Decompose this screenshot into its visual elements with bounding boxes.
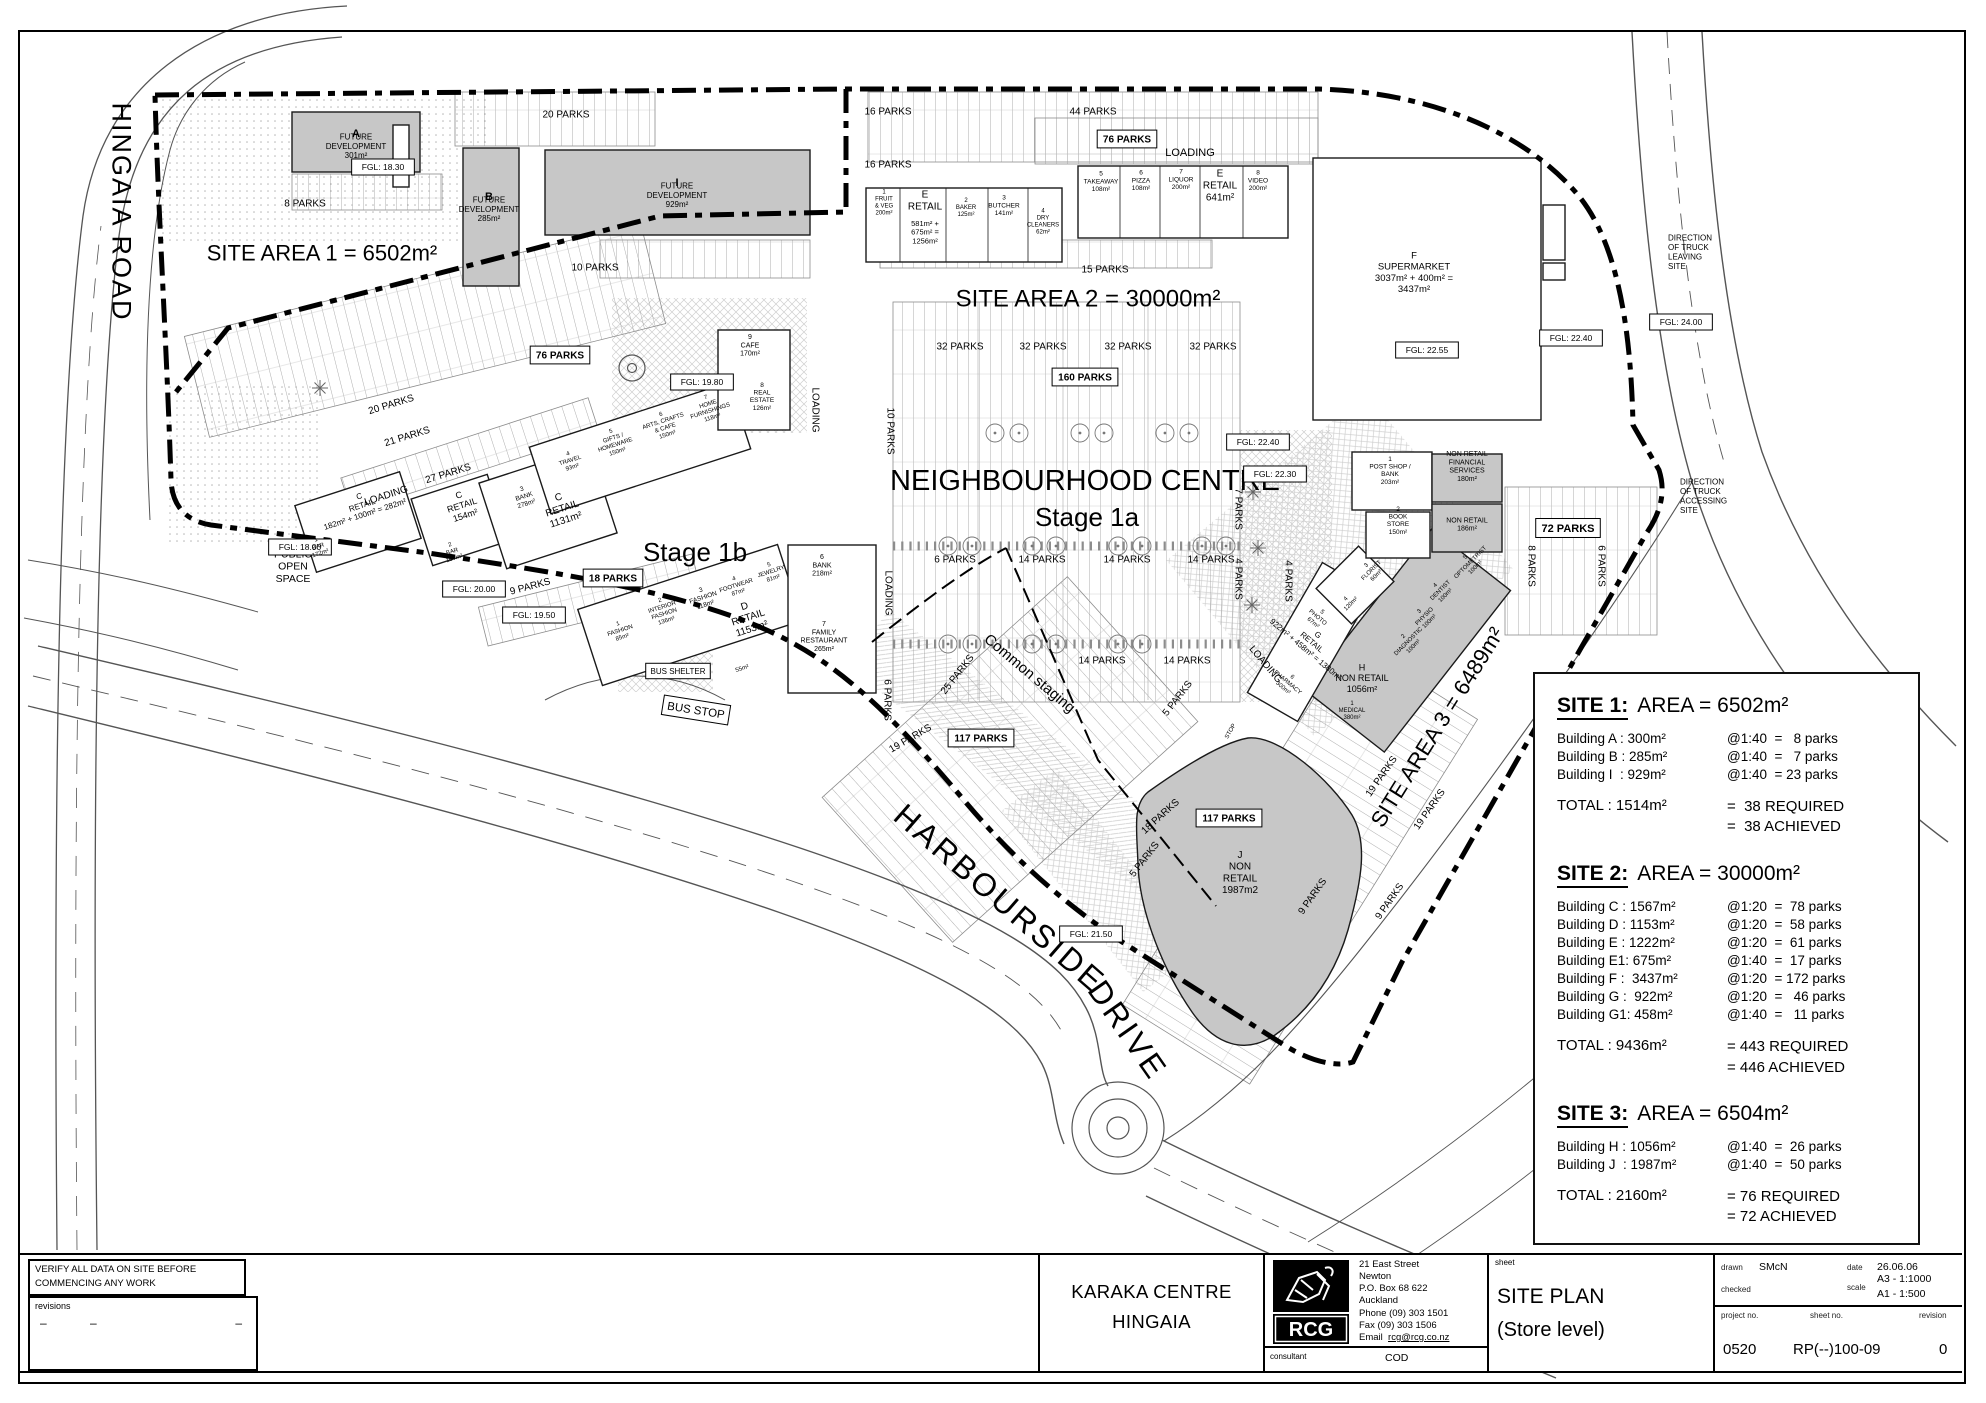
label-line: FGL: 19.50 (513, 610, 556, 620)
tree-trunk (1117, 545, 1120, 548)
label-line: RETAIL (1223, 873, 1258, 884)
building-area: Building A : 300m² (1557, 730, 1727, 748)
label-text: 8 PARKS (284, 199, 326, 210)
label-line: 32 PARKS (1019, 342, 1066, 353)
label-line: DEVELOPMENT (326, 142, 387, 151)
label-text: 16 PARKS (864, 107, 911, 118)
plan-label: 6 PARKS (1596, 545, 1607, 587)
email-line: Email rcg@rcg.co.nz (1359, 1332, 1449, 1344)
label-line: 32 PARKS (936, 342, 983, 353)
label-line: FGL: 22.40 (1237, 437, 1280, 447)
label-line: DRY (1037, 216, 1050, 222)
building-d-bank-restaurant-outline (788, 545, 876, 693)
label-text: 76 PARKS (536, 351, 584, 362)
checked-label: checked (1721, 1285, 1751, 1294)
plan-label: 4 PARKS (1233, 558, 1244, 600)
label-line: FGL: 21.50 (1070, 929, 1113, 939)
parking-calc: @1:40 = 17 parks (1727, 952, 1842, 970)
label-line: 6 PARKS (1596, 545, 1607, 587)
plan-label: 55m² (735, 664, 750, 674)
tree-trunk (947, 643, 950, 646)
label-line: FINANCIAL (1449, 459, 1486, 466)
label-line: 2 (1396, 506, 1400, 513)
stage-1b-label: Stage 1b (643, 537, 747, 567)
label-text: LOADING (883, 570, 894, 615)
building-area: Building G1: 458m² (1557, 1006, 1727, 1024)
consultant-value: COD (1385, 1352, 1408, 1364)
label-text: HINGAIA ROAD (107, 102, 137, 321)
label-line: Stage 1a (1035, 502, 1140, 532)
bus-stop-label: BUS STOP (661, 695, 730, 725)
label-line: 16 PARKS (864, 107, 911, 118)
address-line: Phone (09) 303 1501 (1359, 1308, 1449, 1320)
label-line: 200m² (1249, 185, 1268, 192)
drawn-label: drawn (1721, 1263, 1743, 1272)
truck-graphic-site1 (393, 125, 409, 187)
truck-graphic-dock-outline (1543, 205, 1565, 260)
site-title: SITE 3: (1557, 1102, 1628, 1128)
label-text: 44 PARKS (1069, 107, 1116, 118)
meta-bottom-row: project no. sheet no. revision 0520 RP(-… (1715, 1305, 1962, 1371)
label-text: 14 PARKS (1187, 555, 1234, 566)
label-line: 108m² (1132, 185, 1151, 192)
label-line: FUTURE (340, 132, 372, 141)
label-line: FGL: 19.80 (681, 377, 724, 387)
sheet-no-label: sheet no. (1810, 1311, 1843, 1320)
label-text: STOP (1224, 723, 1237, 740)
label-line: 4 PARKS (1233, 558, 1244, 600)
label-line: BOOK (1389, 513, 1408, 520)
tree-trunk (1141, 643, 1144, 646)
parking-calc: @1:20 = 172 parks (1727, 970, 1845, 988)
road-line (24, 618, 238, 670)
label-text: FGL: 22.55 (1406, 345, 1449, 355)
label-line: F (1411, 251, 1417, 262)
label-line: FGL: 20.00 (453, 584, 496, 594)
revision-label: revision (1919, 1311, 1947, 1320)
site-total-row: TOTAL : 1514m²= 38 REQUIRED= 38 ACHIEVED (1557, 797, 1896, 838)
stage-1a-label: Stage 1a (1035, 502, 1140, 532)
label-text: 72 PARKS (1542, 523, 1595, 535)
tree-trunk (971, 643, 974, 646)
label-line: NON (1229, 862, 1251, 873)
building-parking-row: Building G1: 458m²@1:40 = 11 parks (1557, 1006, 1896, 1024)
plan-label: 10 PARKS (885, 407, 896, 454)
label-text: Stage 1a (1035, 502, 1140, 532)
label-line: 180m² (1457, 476, 1478, 483)
label-line: ACCESSING (1680, 497, 1727, 506)
label-line: 9 PARKS (1373, 881, 1406, 922)
label-text: 6 PARKS (1596, 545, 1607, 587)
parking-calc: @1:40 = 8 parks (1727, 730, 1838, 748)
label-text: 6 PARKS (882, 679, 893, 721)
label-line: FGL: 18.30 (362, 162, 405, 172)
label-line: 8 PARKS (1526, 545, 1537, 587)
tree-trunk (1117, 643, 1120, 646)
label-line: 44 PARKS (1069, 107, 1116, 118)
label-line: STORE (1387, 521, 1410, 528)
label-line: CLEANERS (1027, 223, 1059, 229)
site-area: AREA = 6504m² (1637, 1102, 1788, 1125)
revision-value: 0 (1939, 1341, 1947, 1358)
plan-label: 16 PARKS (864, 160, 911, 171)
label-text: 4 PARKS (1283, 560, 1294, 602)
site-total-result-line: = 38 REQUIRED (1727, 797, 1844, 817)
plan-label: 20 PARKS (542, 110, 589, 121)
label-line: RESTAURANT (801, 638, 849, 645)
label-line: POST SHOP / (1369, 463, 1410, 470)
plan-label: 16 PARKS (864, 107, 911, 118)
consultant-address: 21 East StreetNewtonP.O. Box 68 622Auckl… (1359, 1259, 1449, 1344)
label-line: 21 PARKS (383, 425, 432, 449)
building-parking-row: Building F : 3437m²@1:20 = 172 parks (1557, 970, 1896, 988)
sheet-label: sheet (1495, 1258, 1515, 1267)
label-text: 160 PARKS (1058, 373, 1112, 384)
plan-label: 72 PARKS (1536, 519, 1601, 538)
label-line: 108m² (1092, 186, 1111, 193)
label-text: 21 PARKS (383, 425, 432, 449)
label-line: FGL: 24.00 (1660, 317, 1703, 327)
label-line: FUTURE (473, 195, 505, 204)
plan-label: 4 PARKS (1283, 560, 1294, 602)
label-line: E (922, 190, 929, 201)
site-total-area: TOTAL : 2160m² (1557, 1187, 1727, 1228)
building-parking-row: Building A : 300m²@1:40 = 8 parks (1557, 730, 1896, 748)
parking-schedule-panel: SITE 1:AREA = 6502m²Building A : 300m²@1… (1533, 672, 1920, 1245)
parking-schedule-section: SITE 1:AREA = 6502m²Building A : 300m²@1… (1557, 694, 1896, 838)
label-line: 6 (1139, 170, 1143, 177)
truck-leaving-note: DIRECTIONOF TRUCKLEAVINGSITE (1668, 234, 1712, 271)
site-total-row: TOTAL : 2160m²= 76 REQUIRED= 72 ACHIEVED (1557, 1187, 1896, 1228)
label-line: 62m² (1036, 230, 1050, 236)
label-line: 1987m2 (1222, 885, 1259, 896)
label-line: 3437m² (1398, 284, 1430, 295)
address-line: P.O. Box 68 622 (1359, 1283, 1449, 1295)
plan-label: STOP (1224, 723, 1237, 740)
site-total-results: = 76 REQUIRED= 72 ACHIEVED (1727, 1187, 1840, 1228)
label-text: 117 PARKS (954, 734, 1008, 745)
fgl-22-55: FGL: 22.55 (1396, 342, 1459, 358)
label-line: J (1238, 850, 1243, 861)
truck-accessing-note: DIRECTIONOF TRUCKACCESSINGSITE (1680, 478, 1727, 515)
label-text: DIRECTIONOF TRUCKLEAVINGSITE (1668, 234, 1712, 271)
tree-trunk (1225, 545, 1228, 548)
label-line: 6 PARKS (934, 555, 976, 566)
label-line: 117 PARKS (1202, 814, 1256, 825)
label-text: Stage 1b (643, 537, 747, 567)
fgl-21-50: FGL: 21.50 (1060, 926, 1123, 942)
building-area: Building J : 1987m² (1557, 1156, 1727, 1174)
label-text: 8 PARKS (1526, 545, 1537, 587)
parking-schedule-section: SITE 3:AREA = 6504m²Building H : 1056m²@… (1557, 1102, 1896, 1228)
project-no-label: project no. (1721, 1311, 1758, 1320)
building-parking-row: Building E : 1222m²@1:20 = 61 parks (1557, 934, 1896, 952)
roundabout (1107, 1117, 1129, 1139)
label-line: RETAIL (908, 201, 943, 212)
site-total-row: TOTAL : 9436m²= 443 REQUIRED= 446 ACHIEV… (1557, 1037, 1896, 1078)
label-line: Stage 1b (643, 537, 747, 567)
label-line: FGL: 22.30 (1254, 469, 1297, 479)
parking-calc: @1:20 = 58 parks (1727, 916, 1842, 934)
site-heading: SITE 2:AREA = 30000m² (1557, 862, 1896, 886)
label-line: FUTURE (661, 181, 693, 190)
plan-label: LOADING (810, 387, 821, 432)
plan-label: 32 PARKS (936, 342, 983, 353)
label-text: 14 PARKS (1163, 656, 1210, 667)
parking-schedule-section: SITE 2:AREA = 30000m²Building C : 1567m²… (1557, 862, 1896, 1078)
label-text: LOADING (810, 387, 821, 432)
label-line: RETAIL (1203, 181, 1238, 192)
plan-label: 32 PARKS (1189, 342, 1236, 353)
label-line: LOADING (810, 387, 821, 432)
label-line: 8 (760, 382, 764, 389)
label-line: 55m² (735, 664, 750, 674)
drawing-meta-cell: drawn SMcN date 26.06.06 checked scale A… (1713, 1255, 1962, 1371)
scale-value-a1: A1 - 1:500 (1877, 1288, 1925, 1300)
fgl-18-30: FGL: 18.30 (352, 159, 415, 175)
label-line: ESTATE (750, 397, 775, 404)
label-line: BUTCHER (988, 202, 1020, 209)
tree-trunk (1031, 545, 1034, 548)
site-area-2-label: SITE AREA 2 = 30000m² (956, 285, 1221, 312)
plan-label: 7 PARKS (1233, 488, 1244, 530)
rcg-logo-top (1273, 1260, 1349, 1312)
building-area: Building F : 3437m² (1557, 970, 1727, 988)
building-parking-row: Building J : 1987m²@1:40 = 50 parks (1557, 1156, 1896, 1174)
site-total-results: = 38 REQUIRED= 38 ACHIEVED (1727, 797, 1844, 838)
label-line: SITE (1668, 262, 1686, 271)
parking-calc: @1:20 = 46 parks (1727, 988, 1845, 1006)
building-parking-row: Building C : 1567m²@1:20 = 78 parks (1557, 898, 1896, 916)
label-text: FGL: 22.40 (1237, 437, 1280, 447)
address-line: Auckland (1359, 1295, 1449, 1307)
label-line: TAKEAWAY (1084, 178, 1119, 185)
parking-calc: @1:20 = 78 parks (1727, 898, 1842, 916)
plan-label: 14 PARKS (1103, 555, 1150, 566)
building-area: Building C : 1567m² (1557, 898, 1727, 916)
label-line: DIRECTION (1668, 234, 1712, 243)
tree-trunk (1055, 643, 1058, 646)
site-total-area: TOTAL : 9436m² (1557, 1037, 1727, 1078)
label-line: 200m² (875, 211, 892, 217)
label-line: SITE AREA 2 = 30000m² (956, 285, 1221, 312)
label-line: 203m² (1381, 479, 1400, 486)
label-line: HINGAIA ROAD (107, 102, 137, 321)
label-line: REAL (754, 389, 771, 396)
label-text: 32 PARKS (1189, 342, 1236, 353)
meta-top-row: drawn SMcN date 26.06.06 checked scale A… (1715, 1255, 1962, 1307)
label-line: CAFE (741, 342, 760, 349)
label-text: SITE AREA 2 = 30000m² (956, 285, 1221, 312)
sheet-no-value: RP(--)100-09 (1793, 1341, 1881, 1358)
road-label-hingaia: HINGAIA ROAD (107, 102, 137, 321)
plan-label: 8 PARKS (1526, 545, 1537, 587)
tree-trunk (1103, 432, 1106, 435)
label-line: 3 (1002, 195, 1006, 202)
label-line: FGL: 22.40 (1550, 333, 1593, 343)
email-label: Email (1359, 1332, 1388, 1343)
plan-label: 6 PARKS (882, 679, 893, 721)
consultant-label: consultant (1270, 1352, 1306, 1361)
site-heading: SITE 1:AREA = 6502m² (1557, 694, 1896, 718)
label-line: 170m² (740, 351, 761, 358)
parking-calc: @1:40 = 26 parks (1727, 1138, 1842, 1156)
revisions-box: revisions – – – (28, 1296, 258, 1371)
scale-value-a3: A3 - 1:1000 (1877, 1273, 1931, 1285)
label-text: FGL: 21.50 (1070, 929, 1113, 939)
label-line: FAMILY (812, 629, 837, 636)
plan-label: LOADING (883, 570, 894, 615)
label-line: BANK (812, 562, 831, 569)
label-line: BUS SHELTER (651, 667, 706, 676)
parking-calc: @1:40 = 50 parks (1727, 1156, 1842, 1174)
building-area: Building G : 922m² (1557, 988, 1727, 1006)
tree-trunk (994, 432, 997, 435)
date-label: date (1847, 1263, 1863, 1272)
label-line: 8 PARKS (284, 199, 326, 210)
label-line: LOADING (883, 570, 894, 615)
fgl-20-00: FGL: 20.00 (443, 581, 506, 597)
label-line: 929m² (666, 200, 689, 209)
label-line: FGL: 22.55 (1406, 345, 1449, 355)
project-no-value: 0520 (1723, 1341, 1756, 1358)
plan-label: 18 PARKS (583, 569, 643, 587)
label-line: MEDICAL (1339, 708, 1366, 714)
site-area: AREA = 30000m² (1637, 862, 1800, 885)
building-d-bank-restaurant (788, 545, 876, 693)
consultant-strip: consultant COD (1265, 1346, 1487, 1371)
label-line: 3037m² + 400m² = (1375, 273, 1454, 284)
label-line: FRUIT (875, 197, 893, 203)
label-text: 32 PARKS (1104, 342, 1151, 353)
label-line: 218m² (812, 571, 833, 578)
tree-trunk (1141, 545, 1144, 548)
bus-shelter-label: BUS SHELTER (646, 663, 711, 678)
plan-label: 6 PARKS (934, 555, 976, 566)
label-line: 581m² + (911, 219, 939, 228)
building-area: Building I : 929m² (1557, 766, 1727, 784)
label-line: 14 PARKS (1103, 555, 1150, 566)
address-line: 21 East Street (1359, 1259, 1449, 1271)
fgl-19-80: FGL: 19.80 (671, 374, 734, 390)
label-text: 20 PARKS (542, 110, 589, 121)
label-line: NON RETAIL (1446, 517, 1488, 524)
plan-label: 160 PARKS (1052, 368, 1118, 386)
road-line (76, 226, 101, 1250)
plan-label: 32 PARKS (1104, 342, 1151, 353)
label-text: SITE AREA 1 = 6502m² (207, 241, 438, 266)
truck-graphic-site1-outline (393, 125, 409, 187)
fgl-22-40-b: FGL: 22.40 (1227, 434, 1290, 450)
plan-label: 8 PARKS (284, 199, 326, 210)
tree-trunk (1031, 643, 1034, 646)
label-line: STOP (1224, 723, 1237, 740)
label-line: 265m² (814, 646, 835, 653)
plan-label: 76 PARKS (530, 346, 590, 364)
label-line: 141m² (995, 210, 1014, 217)
site-total-result-line: = 76 REQUIRED (1727, 1187, 1840, 1207)
parking-calc: @1:20 = 61 parks (1727, 934, 1842, 952)
site-area-1-label: SITE AREA 1 = 6502m² (207, 241, 438, 266)
tree-trunk (971, 545, 974, 548)
address-line: Fax (09) 303 1506 (1359, 1320, 1449, 1332)
label-line: 14 PARKS (1018, 555, 1065, 566)
tree-trunk (1201, 545, 1204, 548)
label-line: 14 PARKS (1078, 656, 1125, 667)
label-text: 7 PARKS (1233, 488, 1244, 530)
label-line: 6 PARKS (882, 679, 893, 721)
date-value: 26.06.06 (1877, 1261, 1918, 1273)
label-line: NEIGHBOURHOOD CENTRE (890, 465, 1280, 497)
label-line: LOADING (1165, 147, 1215, 159)
label-line: 1 (1388, 456, 1392, 463)
project-title-line2: HINGAIA (1040, 1311, 1263, 1333)
label-line: SUPERMARKET (1378, 262, 1451, 273)
label-line: 641m² (1206, 192, 1235, 203)
label-text: 4 PARKS (1233, 558, 1244, 600)
tree-trunk (1079, 432, 1082, 435)
fgl-19-50: FGL: 19.50 (503, 607, 566, 623)
building-parking-row: Building G : 922m²@1:20 = 46 parks (1557, 988, 1896, 1006)
plan-label: 9 PARKS (1373, 881, 1406, 922)
tree-trunk (1018, 432, 1021, 435)
plan-label: LOADING (1165, 147, 1215, 159)
label-text: 32 PARKS (936, 342, 983, 353)
rcg-logo: RCG (1273, 1260, 1349, 1344)
truck-cab-dock-outline (1543, 263, 1565, 280)
label-line: 10 PARKS (885, 407, 896, 454)
label-text: FGL: 24.00 (1660, 317, 1703, 327)
plan-label: 10 PARKS (571, 263, 618, 274)
verify-note: VERIFY ALL DATA ON SITE BEFORE COMMENCIN… (28, 1259, 246, 1296)
label-text: 14 PARKS (1078, 656, 1125, 667)
label-line: 14 PARKS (1163, 656, 1210, 667)
email-value: rcg@rcg.co.nz (1388, 1332, 1449, 1343)
roundabout (1089, 1099, 1147, 1157)
scale-label: scale (1847, 1283, 1866, 1292)
label-line: 76 PARKS (536, 351, 584, 362)
label-line: E (1217, 169, 1224, 180)
plan-label: 14 PARKS (1018, 555, 1065, 566)
plan-label: 76 PARKS (1097, 130, 1157, 148)
label-text: 15 PARKS (1081, 265, 1128, 276)
site-heading: SITE 3:AREA = 6504m² (1557, 1102, 1896, 1126)
plan-label: 14 PARKS (1163, 656, 1210, 667)
site-title: SITE 1: (1557, 694, 1628, 720)
label-line: LIQUOR (1169, 176, 1194, 183)
label-text: 16 PARKS (864, 160, 911, 171)
label-line: SITE AREA 1 = 6502m² (207, 241, 438, 266)
label-text: FGL: 19.80 (681, 377, 724, 387)
plan-label: 117 PARKS (1196, 809, 1262, 827)
site-total-result-line: = 446 ACHIEVED (1727, 1058, 1848, 1078)
label-line: SPACE (276, 573, 311, 585)
plan-label: 581m² +675m² =1256m² (911, 219, 939, 246)
revisions-label: revisions (35, 1301, 71, 1311)
building-area: Building B : 285m² (1557, 748, 1727, 766)
revisions-marks: – – (40, 1316, 103, 1330)
label-line: DEVELOPMENT (647, 191, 708, 200)
site-total-area: TOTAL : 1514m² (1557, 797, 1727, 838)
label-line: 6 (820, 554, 824, 561)
plan-label: 117 PARKS (948, 729, 1014, 747)
label-line: DIRECTION (1680, 478, 1724, 487)
label-line: VIDEO (1248, 177, 1268, 184)
sheet-subtitle: (Store level) (1497, 1319, 1605, 1342)
label-line: LEAVING (1668, 253, 1702, 262)
building-area: Building E1: 675m² (1557, 952, 1727, 970)
label-line: BAKER (956, 205, 977, 211)
